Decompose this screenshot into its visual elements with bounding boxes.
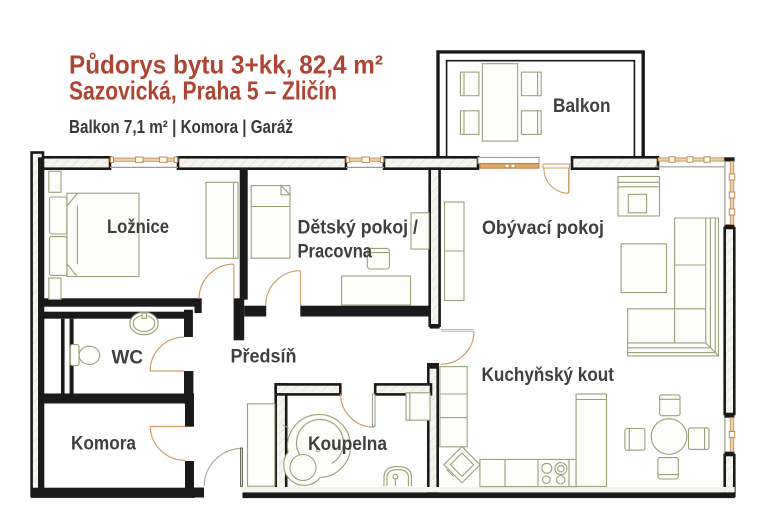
svg-text:Sazovická, Praha 5 – Zličín: Sazovická, Praha 5 – Zličín bbox=[69, 76, 337, 106]
svg-text:WC: WC bbox=[112, 348, 144, 369]
svg-text:Koupelna: Koupelna bbox=[308, 434, 387, 455]
svg-text:Předsíň: Předsíň bbox=[231, 347, 297, 368]
svg-text:Ložnice: Ložnice bbox=[107, 217, 169, 238]
svg-text:Obývací pokoj: Obývací pokoj bbox=[482, 218, 604, 239]
svg-text:Kuchyňský kout: Kuchyňský kout bbox=[482, 365, 615, 386]
svg-text:Pracovna: Pracovna bbox=[298, 242, 373, 263]
svg-text:Balkon 7,1 m² | Komora | Garáž: Balkon 7,1 m² | Komora | Garáž bbox=[69, 117, 293, 137]
svg-text:Dětský pokoj /: Dětský pokoj / bbox=[298, 218, 419, 239]
svg-text:Komora: Komora bbox=[71, 434, 136, 455]
svg-text:Balkon: Balkon bbox=[553, 96, 611, 117]
